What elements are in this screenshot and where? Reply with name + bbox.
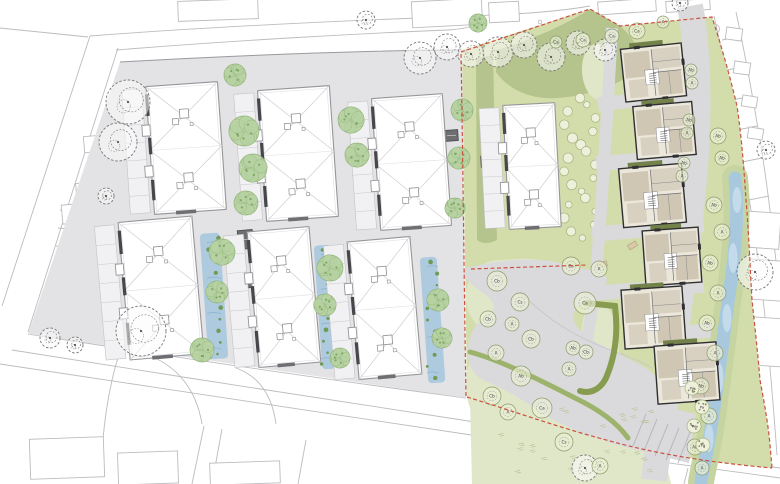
labeled-tree-icon: Cs (555, 433, 573, 451)
green-tree-icon (432, 328, 452, 348)
sketch-tree-icon (511, 32, 537, 58)
tree-species-label: Cb (494, 278, 500, 283)
labeled-tree-icon: Ca (605, 29, 619, 43)
labeled-tree-icon: A (562, 362, 576, 376)
residential-block (223, 227, 321, 372)
labeled-tree-icon: Cb (522, 330, 540, 348)
sketch-tree-icon (757, 141, 775, 159)
labeled-tree-icon: Ab (685, 64, 697, 76)
green-tree-icon (314, 294, 337, 316)
planter-label: Pa (692, 423, 696, 428)
tree-species-label: Cb (485, 316, 491, 321)
tree-species-label: Ab (704, 320, 710, 325)
labeled-tree-icon: A (488, 345, 504, 361)
planter-icon: Pa (687, 419, 701, 433)
sketch-tree-icon (537, 43, 565, 71)
floorplan-building (618, 158, 688, 229)
labeled-tree-icon: Ca (576, 33, 590, 47)
tree-species-label: A (691, 80, 694, 85)
labeled-tree-icon: A (686, 77, 698, 89)
sketch-tree-icon (116, 306, 166, 356)
tree-species-label: Ab (518, 373, 524, 378)
labeled-tree-icon: Cb (579, 345, 593, 359)
green-tree-icon (469, 14, 487, 32)
tree-species-label: A (568, 366, 571, 371)
sketch-tree-icon (67, 337, 83, 353)
labeled-tree-icon: Ab (715, 151, 729, 165)
tree-species-label: Cs (517, 299, 522, 304)
tree-species-label: A (681, 173, 684, 178)
tree-species-label: A (686, 130, 689, 135)
tree-species-label: A (701, 465, 704, 470)
planter-label: Pa (700, 404, 704, 409)
sketch-tree-icon (483, 37, 513, 67)
sketch-tree-icon (40, 328, 60, 348)
labeled-tree-icon: A (592, 458, 608, 474)
tree-species-label: A (599, 463, 602, 468)
planter-label: Pa (690, 385, 694, 390)
labeled-tree-icon: Cb (480, 311, 496, 327)
planter-icon: Pa (695, 400, 709, 414)
labeled-tree-icon: Ca (574, 292, 596, 314)
tree-species-label: Ca (580, 37, 586, 42)
labeled-tree-icon: A (681, 127, 693, 139)
labeled-tree-icon: Ca (629, 23, 645, 39)
tree-species-label: Ca (582, 300, 588, 305)
planter-icon: Pa (685, 381, 699, 395)
labeled-tree-icon: A (591, 261, 607, 277)
architectural-site-plan: CaCaCaCaAAbAAbAAbAAbAbAbAAbAAbAAbAAbACbC… (0, 0, 780, 484)
tree-species-label: Ca (634, 28, 640, 33)
labeled-tree-icon: Ab (683, 114, 695, 126)
residential-block (479, 103, 561, 232)
green-tree-icon (190, 338, 214, 362)
tree-species-label: A (495, 350, 498, 355)
tree-species-label: Ca (539, 405, 545, 410)
tree-species-label: Cb (528, 336, 534, 341)
green-tree-icon (448, 147, 470, 169)
labeled-tree-icon: Ab (710, 128, 726, 144)
green-tree-icon (445, 198, 465, 218)
tree-species-label: Ab (686, 117, 692, 122)
sketch-tree-icon (106, 80, 150, 124)
green-tree-icon (345, 143, 369, 167)
tree-species-label: Ca (609, 33, 615, 38)
labeled-tree-icon: A (695, 461, 709, 475)
sketch-tree-icon (99, 123, 137, 161)
floorplan-building (620, 38, 688, 104)
sketch-tree-icon (357, 11, 375, 29)
tree-species-label: A (511, 321, 514, 326)
tree-species-label: A (721, 229, 724, 234)
tree-species-label: Ab (719, 155, 725, 160)
labeled-tree-icon: Ab (678, 157, 690, 169)
green-tree-icon (330, 348, 350, 368)
green-tree-icon (317, 255, 343, 281)
labeled-tree-icon: Cs (511, 293, 529, 311)
green-tree-icon (427, 289, 449, 311)
sketch-tree-icon (737, 254, 773, 290)
labeled-tree-icon: Ab (702, 255, 718, 271)
labeled-tree-icon: Ab (511, 366, 531, 386)
tree-species-label: Cs (561, 439, 566, 444)
tree-species-label: Ca (553, 39, 559, 44)
sketch-tree-icon (98, 188, 114, 204)
labeled-tree-icon: A (714, 224, 730, 240)
labeled-tree-icon: Ab (699, 315, 715, 331)
labeled-tree-icon: Ab (566, 341, 580, 355)
tree-species-label: Ab (715, 133, 721, 138)
green-tree-icon (338, 107, 364, 134)
green-tree-icon (224, 64, 246, 86)
sketch-tree-icon (434, 34, 460, 60)
tree-species-label: Cb (489, 393, 495, 398)
floorplan-building (642, 222, 704, 287)
tree-species-label: Ab (707, 260, 713, 265)
tree-species-label: Ab (570, 345, 576, 350)
tree-species-label: Cb (583, 349, 589, 354)
labeled-tree-icon: Cb (487, 271, 507, 291)
tree-species-label: A (708, 413, 711, 418)
tree-species-label: A (717, 290, 720, 295)
labeled-tree-icon: A (505, 317, 519, 331)
green-tree-icon (234, 191, 258, 215)
green-tree-icon (229, 116, 259, 146)
green-tree-icon (239, 154, 267, 182)
tree-species-label: Ab (711, 202, 717, 207)
tree-species-label: Ab (688, 67, 694, 72)
sketch-tree-icon (404, 42, 436, 74)
sketch-tree-icon (458, 41, 484, 67)
green-tree-icon (209, 239, 235, 265)
labeled-tree-icon: A (707, 345, 723, 361)
labeled-tree-icon: Ca (532, 398, 552, 418)
tree-species-label: Ab (681, 160, 687, 165)
labeled-tree-icon: A (710, 285, 726, 301)
planter-label: Pa (701, 442, 705, 447)
planter-icon: Pa (696, 438, 710, 452)
site-plan-canvas: CaCaCaCaAAbAAbAAbAAbAbAbAAbAAbAAbAAbACbC… (0, 0, 780, 484)
labeled-tree-icon: Ab (706, 197, 722, 213)
labeled-tree-icon: Ca (550, 36, 562, 48)
green-tree-icon (206, 281, 228, 303)
tree-species-label: A (714, 350, 717, 355)
tree-species-label: A (598, 266, 601, 271)
labeled-tree-icon: A (676, 170, 688, 182)
